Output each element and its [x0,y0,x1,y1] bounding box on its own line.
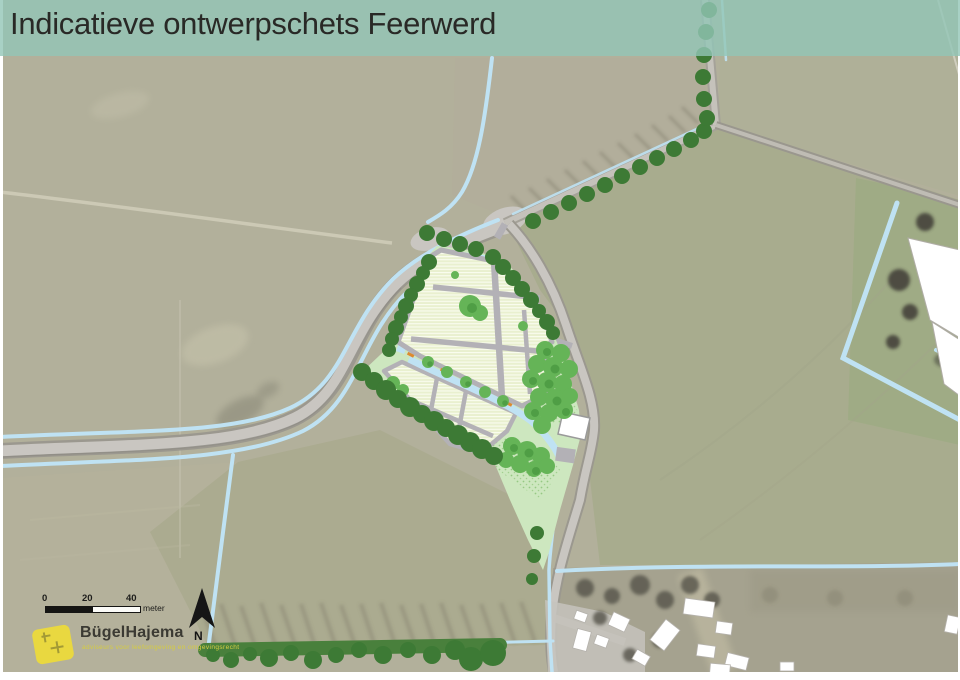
logo-company-name: BügelHajema [80,624,184,642]
scale-tick-0: 0 [42,593,47,604]
logo-square-icon [31,624,75,665]
page-title: Indicatieve ontwerpschets Feerwerd [10,6,496,42]
design-sketch-page: Indicatieve ontwerpschets Feerwerd 0 20 … [0,0,960,680]
north-arrow: N [186,588,218,648]
scale-tick-20: 20 [82,593,93,604]
parking-area [555,447,576,464]
scale-bar-graphic [45,606,141,613]
page-margin-left [0,0,3,680]
title-banner: Indicatieve ontwerpschets Feerwerd [0,0,960,56]
scale-tick-40: 40 [126,593,137,604]
aerial-map [0,0,960,680]
page-margin-bottom [0,672,960,680]
scale-unit-label: meter [143,603,165,613]
north-arrow-icon [186,588,218,630]
bugelhajema-logo: BügelHajema adviseurs voor leefomgeving … [34,619,204,667]
north-label: N [194,629,203,643]
